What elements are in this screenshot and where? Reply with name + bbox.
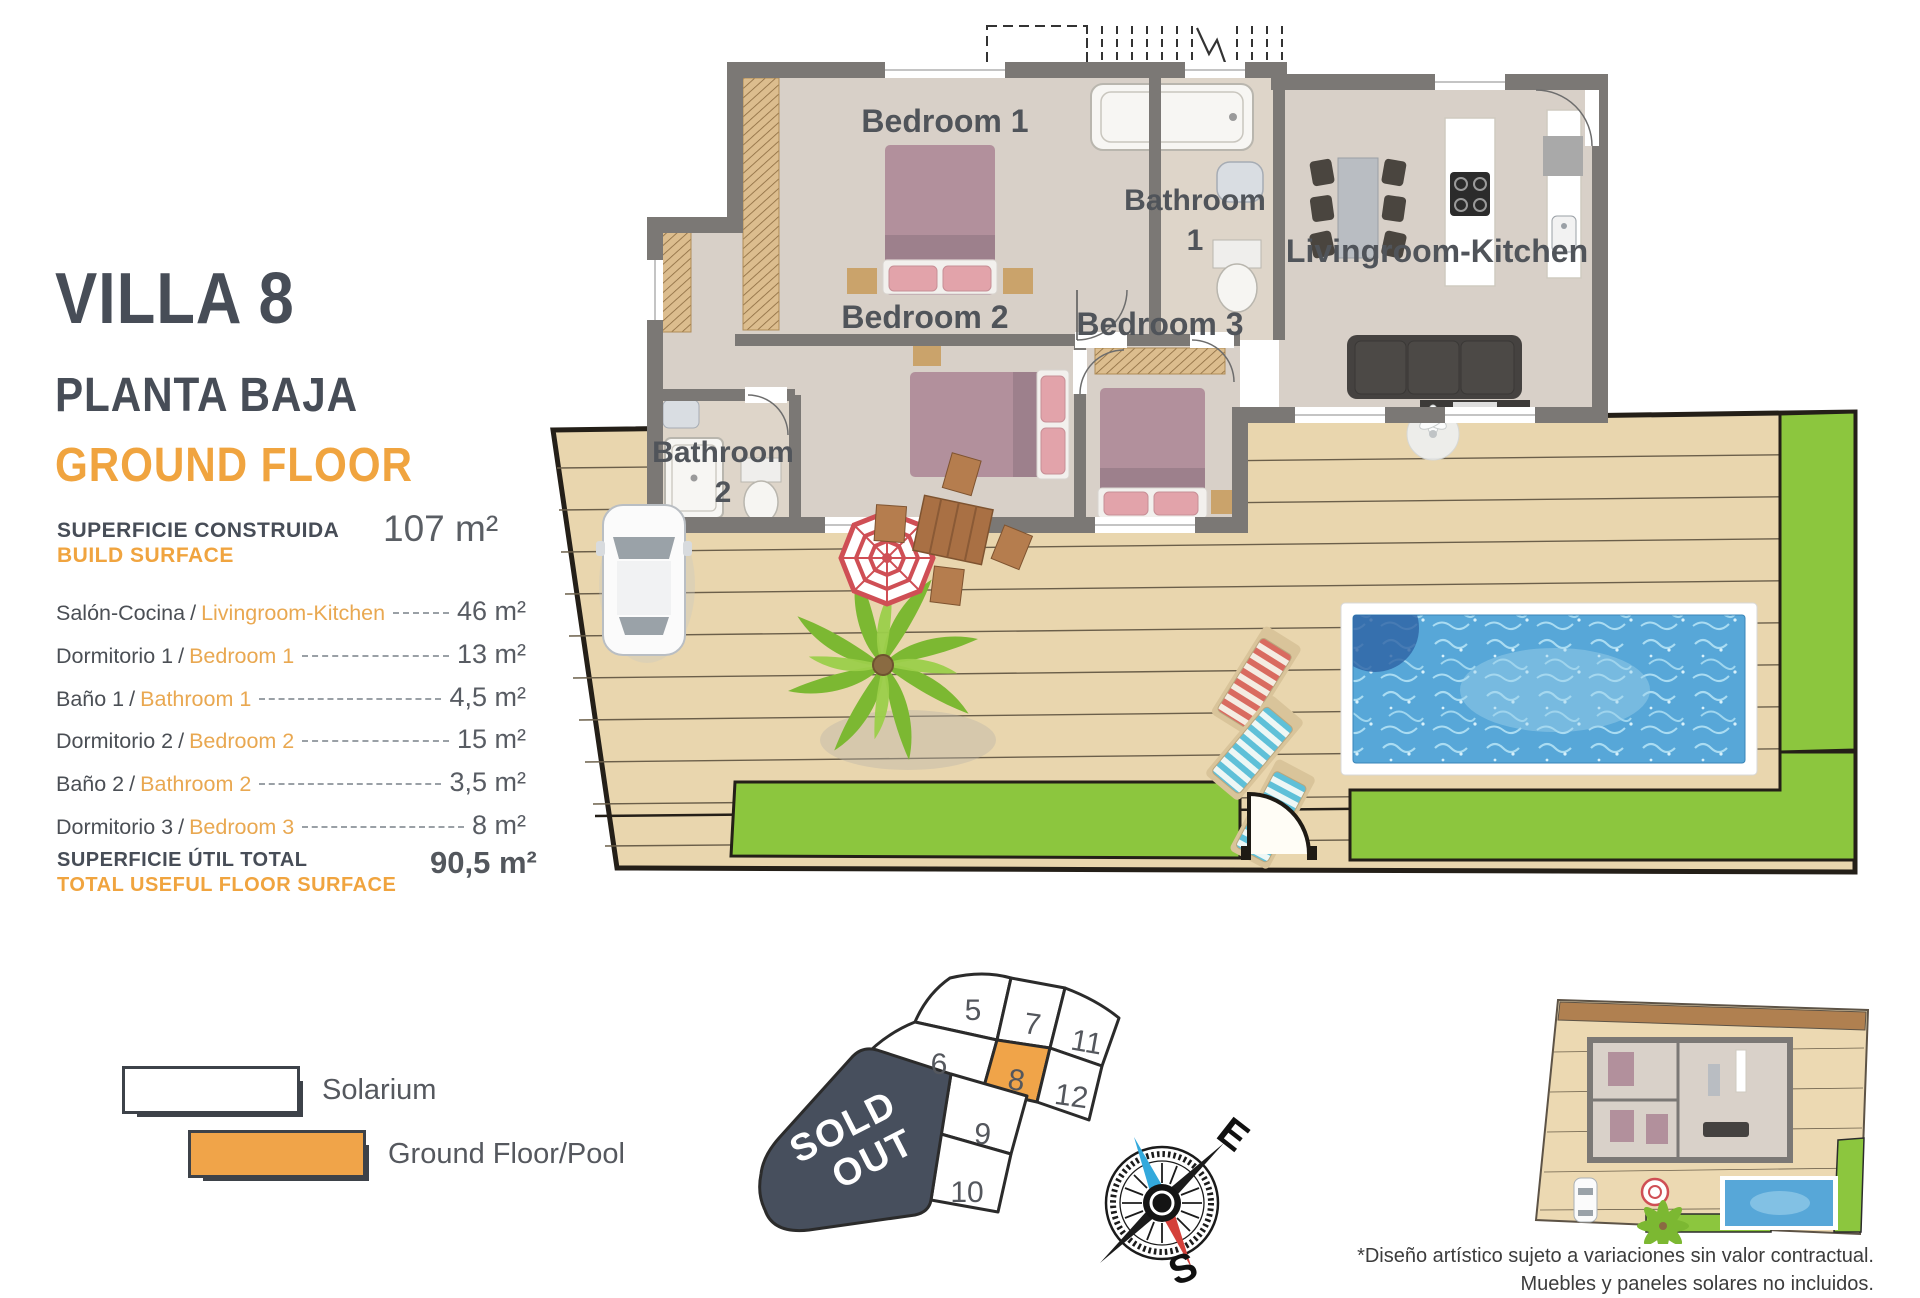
disclaimer-line1: *Diseño artístico sujeto a variaciones s… xyxy=(1054,1242,1874,1270)
room-label-en: Bedroom 1 xyxy=(189,644,294,669)
build-surface-value: 107 m² xyxy=(383,508,498,550)
separator: / xyxy=(190,601,196,626)
room-label-en: Bedroom 2 xyxy=(189,729,294,754)
separator: / xyxy=(178,815,184,840)
disclaimer-line2: Muebles y paneles solares no incluidos. xyxy=(1054,1270,1874,1298)
room-label-es: Salón-Cocina xyxy=(56,601,185,626)
bathroom1-number: 1 xyxy=(1187,224,1204,257)
room-label-es: Baño 1 xyxy=(56,687,124,712)
total-surface-block: SUPERFICIE ÚTIL TOTAL TOTAL USEFUL FLOOR… xyxy=(57,848,396,898)
mini-car xyxy=(1574,1178,1597,1222)
mini-pool xyxy=(1720,1176,1838,1230)
bedroom1-label: Bedroom 1 xyxy=(861,103,1028,139)
separator: / xyxy=(178,729,184,754)
mini-site-plan xyxy=(1528,982,1903,1244)
plot-number-6: 6 xyxy=(931,1048,948,1081)
room-row-bedroom2: Dormitorio 2 / Bedroom 2 15 m² xyxy=(56,724,526,767)
solarium-label: Solarium xyxy=(322,1074,436,1107)
grass-right-strip xyxy=(1780,412,1855,752)
plot-number-9: 9 xyxy=(973,1117,992,1151)
room-label-es: Dormitorio 1 xyxy=(56,644,173,669)
room-label-en: Bathroom 1 xyxy=(140,687,251,712)
main-floor-plan: Bedroom 1 Bathroom 1 Livingroom-Kitchen … xyxy=(495,10,1915,890)
total-label-en: TOTAL USEFUL FLOOR SURFACE xyxy=(57,873,396,898)
dashed-leader xyxy=(302,655,449,657)
bedroom2-label: Bedroom 2 xyxy=(841,299,1008,335)
room-label-en: Bedroom 3 xyxy=(189,815,294,840)
dashed-leader xyxy=(393,612,449,614)
solarium-swatch xyxy=(122,1066,300,1114)
legend-item-solarium: Solarium xyxy=(122,1066,436,1114)
room-row-living: Salón-Cocina / Livingroom-Kitchen 46 m² xyxy=(56,596,526,639)
grass-left-band xyxy=(731,782,1240,858)
separator: / xyxy=(178,644,184,669)
room-row-bedroom1: Dormitorio 1 / Bedroom 1 13 m² xyxy=(56,639,526,682)
plot-number-5: 5 xyxy=(965,994,982,1027)
living-label: Livingroom-Kitchen xyxy=(1286,233,1588,269)
page-title: VILLA 8 xyxy=(55,258,295,340)
car xyxy=(596,505,695,663)
room-row-bathroom1: Baño 1 / Bathroom 1 4,5 m² xyxy=(56,682,526,725)
dashed-leader xyxy=(302,826,464,828)
ground-floor-label: Ground Floor/Pool xyxy=(388,1138,625,1171)
bedroom3-label: Bedroom 3 xyxy=(1076,306,1243,342)
bathroom2-number: 2 xyxy=(715,476,732,509)
room-surface-list: Salón-Cocina / Livingroom-Kitchen 46 m² … xyxy=(56,596,526,853)
dashed-leader xyxy=(259,783,441,785)
build-surface-label-es: SUPERFICIE CONSTRUIDA xyxy=(57,518,339,543)
mini-house xyxy=(1590,1040,1790,1160)
subtitle-es: PLANTA BAJA xyxy=(55,368,358,423)
compass-east-label: E xyxy=(1209,1109,1257,1160)
pool xyxy=(1331,584,1757,775)
disclaimer: *Diseño artístico sujeto a variaciones s… xyxy=(1054,1242,1874,1298)
dashed-leader xyxy=(259,698,441,700)
plot-number-10: 10 xyxy=(950,1176,983,1209)
build-surface-label-en: BUILD SURFACE xyxy=(57,543,339,568)
room-label-es: Dormitorio 2 xyxy=(56,729,173,754)
sofa xyxy=(1347,335,1522,399)
subtitle-en: GROUND FLOOR xyxy=(55,438,413,493)
separator: / xyxy=(129,772,135,797)
room-label-es: Baño 2 xyxy=(56,772,124,797)
separator: / xyxy=(129,687,135,712)
bathroom1-label: Bathroom xyxy=(1124,184,1266,217)
room-label-en: Bathroom 2 xyxy=(140,772,251,797)
room-row-bathroom2: Baño 2 / Bathroom 2 3,5 m² xyxy=(56,767,526,810)
build-surface-block: SUPERFICIE CONSTRUIDA BUILD SURFACE xyxy=(57,518,339,568)
room-label-en: Livingroom-Kitchen xyxy=(201,601,385,626)
bathroom2-label: Bathroom xyxy=(652,436,794,469)
dashed-leader xyxy=(302,740,449,742)
legend-item-groundfloor: Ground Floor/Pool xyxy=(188,1130,625,1178)
total-label-es: SUPERFICIE ÚTIL TOTAL xyxy=(57,848,396,873)
plot-number-11: 11 xyxy=(1068,1024,1104,1062)
room-label-es: Dormitorio 3 xyxy=(56,815,173,840)
ground-floor-swatch xyxy=(188,1130,366,1178)
